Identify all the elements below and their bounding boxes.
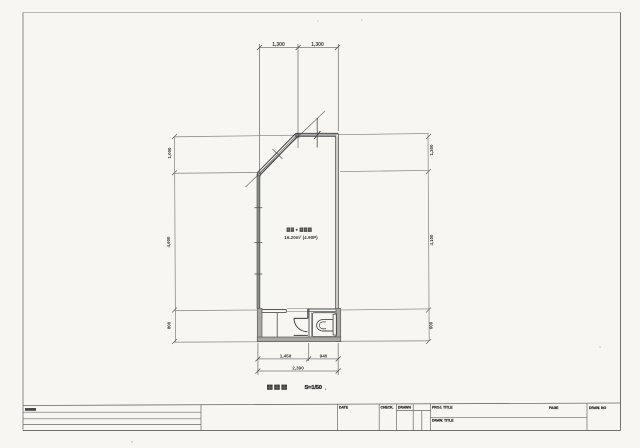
svg-text:DRAW. TITLE: DRAW. TITLE [432, 418, 454, 422]
svg-text:1,300: 1,300 [311, 42, 324, 48]
svg-text:DRAW. NO: DRAW. NO [589, 406, 607, 410]
svg-text:600: 600 [429, 321, 434, 329]
svg-text:16.20m² (4.90P): 16.20m² (4.90P) [284, 235, 318, 240]
svg-text:DRAWN: DRAWN [398, 406, 411, 410]
svg-text:1,300: 1,300 [272, 42, 285, 48]
svg-text:800: 800 [167, 321, 172, 329]
svg-text:940: 940 [320, 353, 328, 358]
svg-text:1,000: 1,000 [167, 147, 172, 159]
svg-text:4,100: 4,100 [429, 234, 434, 246]
svg-text:CHECK.: CHECK. [381, 406, 394, 410]
svg-text:PAGE: PAGE [549, 406, 559, 410]
svg-text:S=1/50: S=1/50 [305, 385, 322, 391]
svg-text:4,600: 4,600 [166, 236, 171, 248]
svg-text:DATE: DATE [339, 406, 349, 410]
svg-text:1,450: 1,450 [280, 353, 292, 358]
svg-text:PROJ. TITLE: PROJ. TITLE [432, 406, 453, 410]
svg-text:1,300: 1,300 [429, 144, 434, 156]
svg-text:2,390: 2,390 [292, 366, 304, 371]
